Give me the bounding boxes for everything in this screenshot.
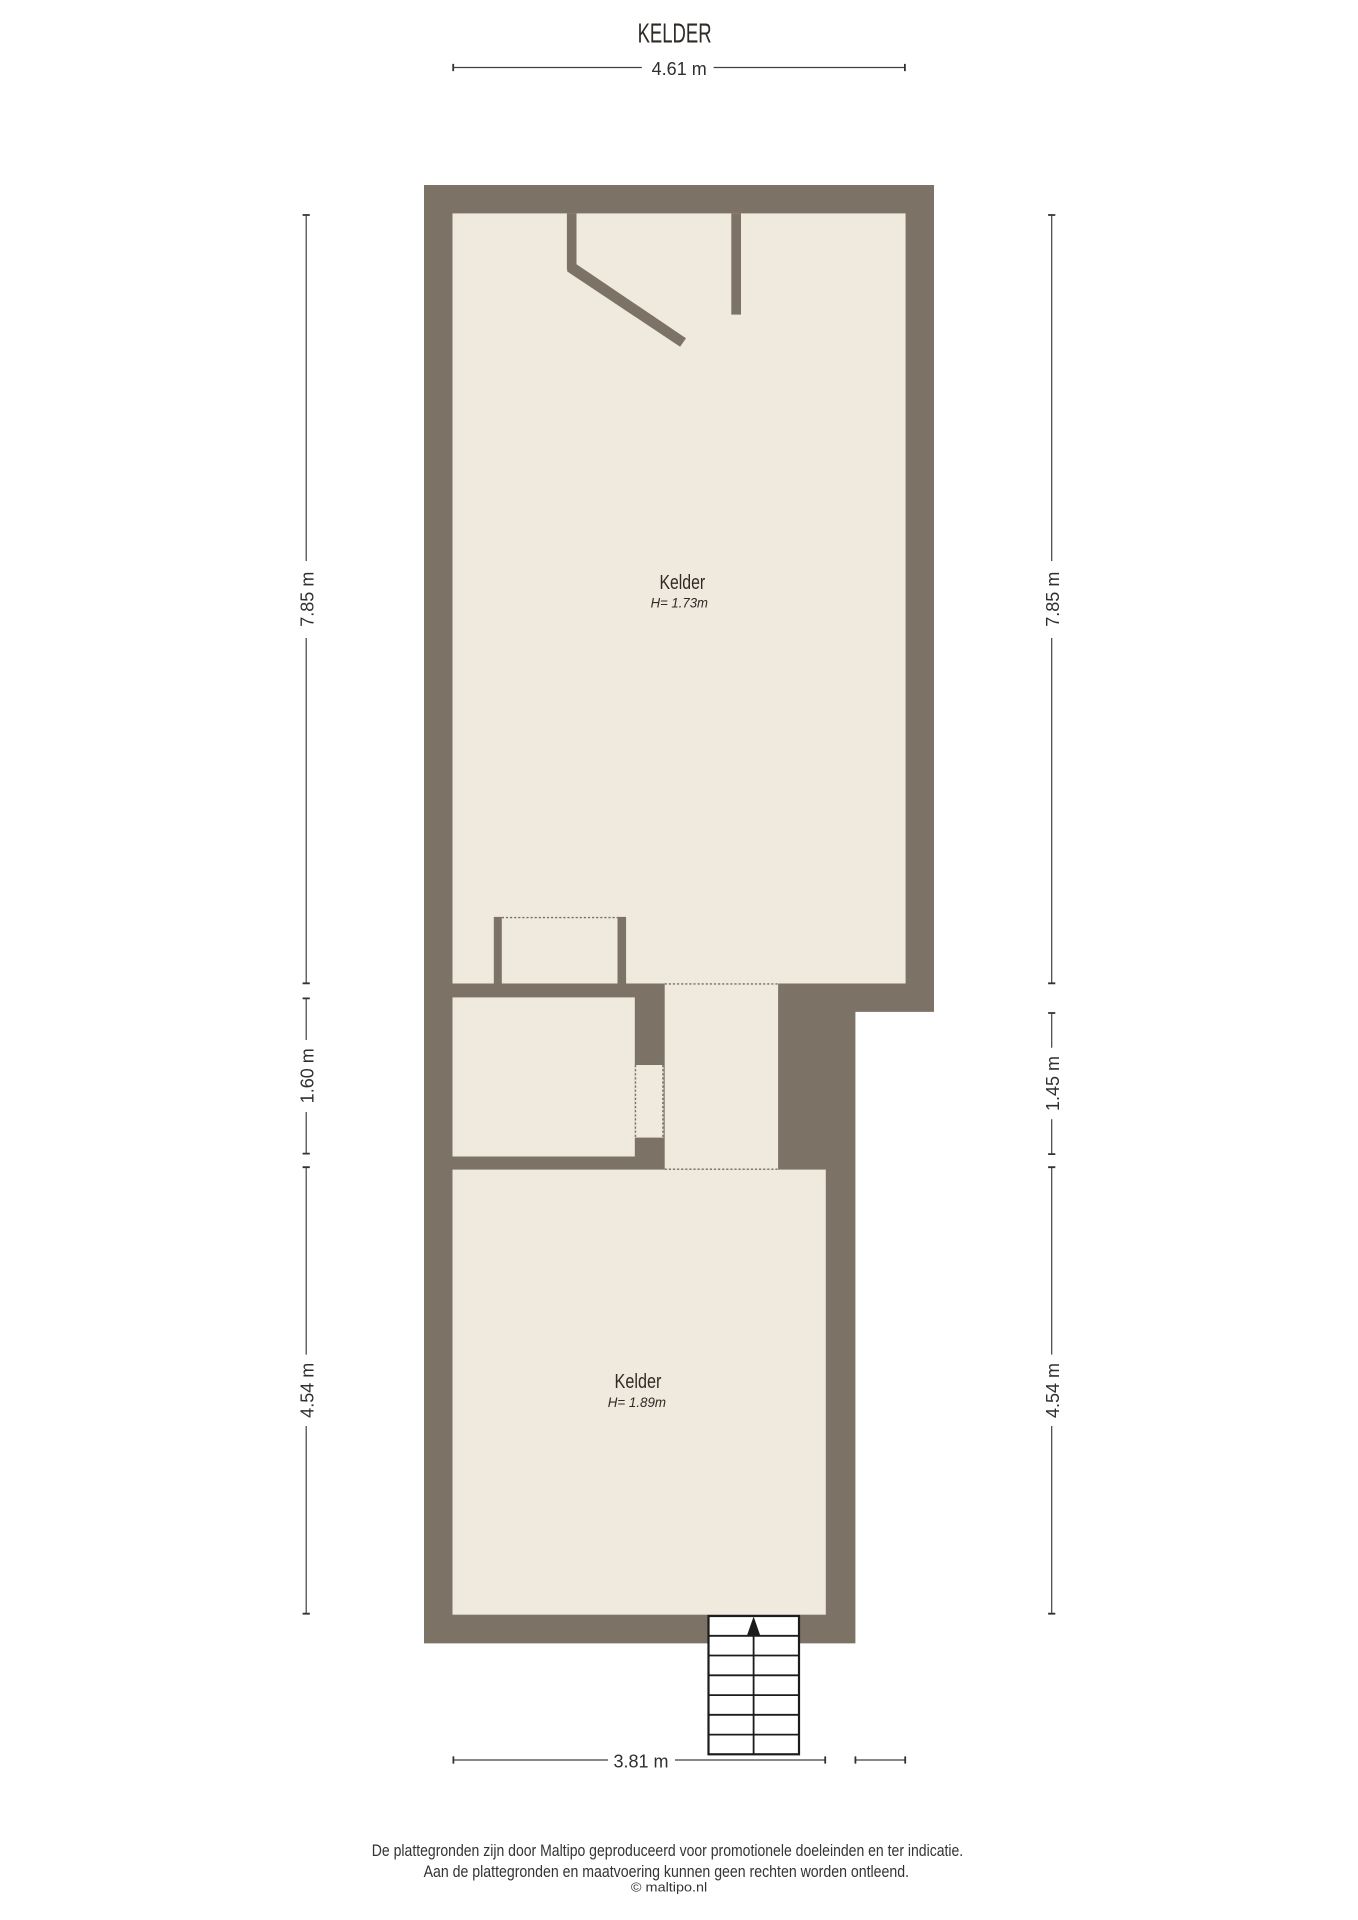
svg-text:Kelder: Kelder [659,572,705,594]
svg-text:KELDER: KELDER [638,17,712,48]
svg-text:7.85 m: 7.85 m [1043,572,1063,627]
svg-text:© maltipo.nl: © maltipo.nl [631,1879,707,1894]
svg-text:4.54 m: 4.54 m [298,1363,318,1418]
svg-text:Kelder: Kelder [615,1371,662,1393]
svg-text:1.45 m: 1.45 m [1043,1056,1063,1111]
svg-text:7.85 m: 7.85 m [298,572,318,627]
svg-text:H= 1.89m: H= 1.89m [608,1394,667,1410]
svg-text:H= 1.73m: H= 1.73m [651,595,709,611]
svg-text:1.60 m: 1.60 m [298,1048,318,1103]
svg-text:De plattegronden zijn door Mal: De plattegronden zijn door Maltipo gepro… [372,1842,963,1860]
svg-text:3.81 m: 3.81 m [613,1751,668,1771]
svg-text:4.61 m: 4.61 m [652,59,707,79]
svg-text:4.54 m: 4.54 m [1043,1363,1063,1418]
